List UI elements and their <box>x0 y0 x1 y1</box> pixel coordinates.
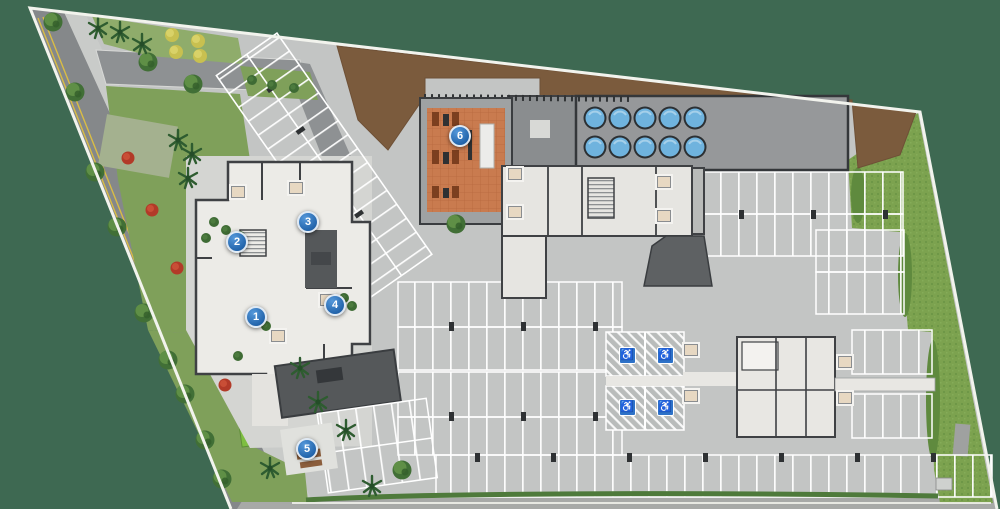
elevator <box>287 180 305 196</box>
water-tank-icon <box>684 107 707 130</box>
site-plan-illustration <box>0 0 1000 509</box>
elevator <box>506 204 524 220</box>
water-tank-icon <box>634 107 657 130</box>
water-tank-icon <box>659 136 682 159</box>
elevator <box>655 174 673 190</box>
elevator <box>836 354 854 370</box>
plan-marker-6[interactable]: 6 <box>449 125 471 147</box>
flower-bush-icon <box>122 152 135 165</box>
bush-icon <box>247 75 257 85</box>
elevator <box>682 342 700 358</box>
plan-marker-2[interactable]: 2 <box>226 231 248 253</box>
water-tank-icon <box>634 136 657 159</box>
bush-icon <box>289 83 299 93</box>
elevator <box>655 208 673 224</box>
tree-icon <box>44 13 63 32</box>
plan-marker-4-label: 4 <box>332 299 338 311</box>
water-tank-icon <box>584 107 607 130</box>
bush-icon <box>169 45 183 59</box>
plan-marker-1[interactable]: 1 <box>245 306 267 328</box>
accessible-parking-icon: ♿ <box>619 399 636 416</box>
bush-icon <box>193 49 207 63</box>
parking-grid-central <box>398 282 622 455</box>
water-tank-icon <box>659 107 682 130</box>
elevator <box>682 388 700 404</box>
plan-marker-3-label: 3 <box>305 216 311 228</box>
accessible-parking-icon: ♿ <box>657 399 674 416</box>
water-tank-icon <box>584 136 607 159</box>
water-tank-icon <box>684 136 707 159</box>
plan-marker-1-label: 1 <box>253 311 259 323</box>
plan-marker-4[interactable]: 4 <box>324 294 346 316</box>
elevator <box>229 184 247 200</box>
tree-icon <box>139 53 158 72</box>
plan-marker-2-label: 2 <box>234 236 240 248</box>
plan-marker-5[interactable]: 5 <box>296 438 318 460</box>
tree-icon <box>184 75 203 94</box>
gym-deck <box>420 98 512 234</box>
site-plan-canvas: 1 2 3 4 5 6 ♿ ♿ ♿ ♿ <box>0 0 1000 509</box>
accessible-parking-icon: ♿ <box>619 347 636 364</box>
flower-bush-icon <box>219 379 232 392</box>
plan-marker-5-label: 5 <box>304 443 310 455</box>
bush-icon <box>267 80 277 90</box>
parking-row-bottom <box>436 453 992 497</box>
tree-icon <box>393 461 412 480</box>
elevator <box>506 166 524 182</box>
flower-bush-icon <box>171 262 184 275</box>
elevator <box>836 390 854 406</box>
bush-icon <box>165 28 179 42</box>
tree-icon <box>66 83 85 102</box>
flower-bush-icon <box>146 204 159 217</box>
tree-icon <box>447 215 466 234</box>
plan-marker-6-label: 6 <box>457 130 463 142</box>
plan-marker-3[interactable]: 3 <box>297 211 319 233</box>
water-tank-icon <box>609 136 632 159</box>
accessible-parking-icon: ♿ <box>657 347 674 364</box>
water-tank-icon <box>609 107 632 130</box>
elevator <box>269 328 287 344</box>
stairs <box>588 178 614 218</box>
bush-icon <box>191 34 205 48</box>
